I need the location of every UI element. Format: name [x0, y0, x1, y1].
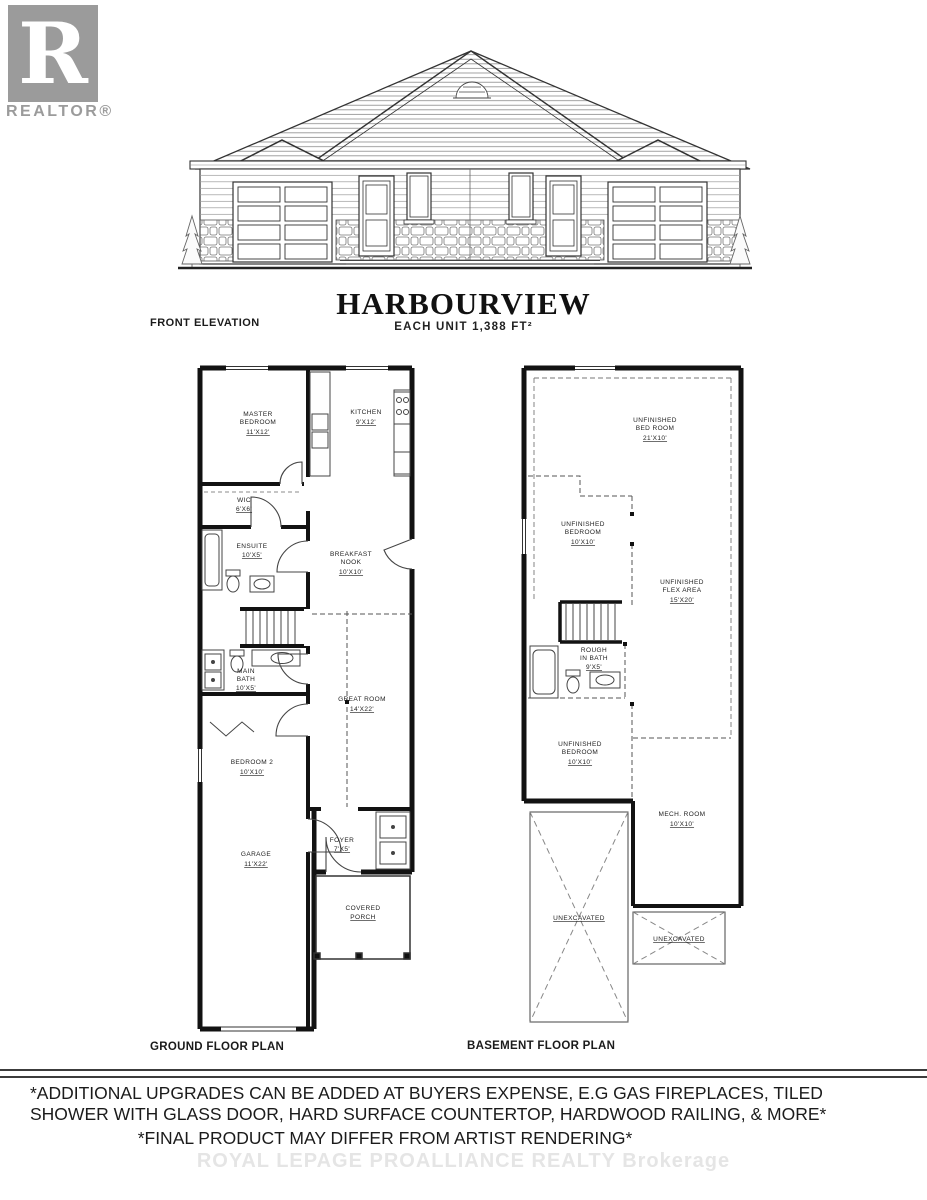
svg-text:10'X10': 10'X10' — [339, 569, 363, 576]
disclaimer-line-2: SHOWER WITH GLASS DOOR, HARD SURFACE COU… — [30, 1104, 910, 1125]
svg-text:10'X10': 10'X10' — [571, 539, 595, 546]
roof — [195, 51, 750, 169]
svg-text:ROUGH: ROUGH — [581, 647, 607, 654]
gf-room-label-porch: COVERED PORCH — [346, 905, 381, 921]
realtor-logo-letter: R — [8, 5, 98, 102]
shrub-left-icon — [182, 216, 202, 268]
gf-foyer-closet — [376, 812, 410, 869]
svg-text:BATH: BATH — [237, 676, 255, 683]
gf-room-label-breakfast: BREAKFAST NOOK 10'X10' — [330, 551, 372, 576]
bs-room-label-bed-mid: UNFINISHED BEDROOM 10'X10' — [561, 521, 605, 546]
svg-text:11'X22': 11'X22' — [244, 861, 268, 868]
svg-text:BEDROOM: BEDROOM — [562, 749, 598, 756]
eave-fascia — [190, 161, 746, 169]
svg-text:21'X10': 21'X10' — [643, 435, 667, 442]
realtor-logo-icon: R — [8, 5, 98, 102]
svg-text:9'X5': 9'X5' — [586, 664, 602, 671]
gf-room-label-main-bath: MAIN BATH 10'X5' — [236, 668, 256, 692]
gf-bedroom2-closet — [210, 722, 254, 736]
svg-text:10'X5': 10'X5' — [242, 552, 262, 559]
svg-text:BREAKFAST: BREAKFAST — [330, 551, 372, 558]
brokerage-watermark: ROYAL LEPAGE PROALLIANCE REALTY Brokerag… — [0, 1150, 927, 1173]
svg-text:KITCHEN: KITCHEN — [350, 409, 381, 416]
disclaimer-line-1: *ADDITIONAL UPGRADES CAN BE ADDED AT BUY… — [30, 1083, 910, 1104]
svg-text:WIC: WIC — [237, 497, 251, 504]
svg-text:GARAGE: GARAGE — [241, 851, 271, 858]
svg-text:MASTER: MASTER — [243, 411, 273, 418]
svg-text:BED ROOM: BED ROOM — [636, 425, 675, 432]
svg-text:10'X10': 10'X10' — [568, 759, 592, 766]
window-left — [404, 173, 434, 224]
svg-text:GREAT ROOM: GREAT ROOM — [338, 696, 386, 703]
svg-text:15'X20': 15'X20' — [670, 597, 694, 604]
svg-text:NOOK: NOOK — [341, 559, 362, 566]
gf-room-label-kitchen: KITCHEN 9'X12' — [350, 409, 381, 426]
svg-text:ENSUITE: ENSUITE — [237, 543, 268, 550]
svg-text:MAIN: MAIN — [237, 668, 255, 675]
gf-room-label-master: MASTER BEDROOM 11'X12' — [240, 411, 276, 436]
bs-room-label-flex: UNFINISHED FLEX AREA 15'X20' — [660, 579, 704, 604]
svg-text:BEDROOM 2: BEDROOM 2 — [231, 759, 274, 766]
realtor-logo-label: REALTOR® — [6, 103, 116, 121]
svg-text:UNFINISHED: UNFINISHED — [558, 741, 602, 748]
garage-door-left — [233, 182, 332, 262]
bs-stairs — [560, 602, 622, 642]
flyer-page: R REALTOR® — [0, 0, 927, 1200]
svg-text:6'X6': 6'X6' — [236, 506, 252, 513]
gf-room-label-foyer: FOYER 7'X5' — [330, 837, 354, 853]
bs-label-unexcavated-1: UNEXCAVATED — [553, 915, 605, 922]
svg-text:UNFINISHED: UNFINISHED — [561, 521, 605, 528]
svg-text:BEDROOM: BEDROOM — [240, 419, 276, 426]
gf-room-label-wic: WIC 6'X6' — [236, 497, 252, 513]
svg-text:10'X5': 10'X5' — [236, 685, 256, 692]
unit-size-subtitle: EACH UNIT 1,388 FT² — [0, 321, 927, 333]
gf-room-label-ensuite: ENSUITE 10'X5' — [237, 543, 268, 559]
svg-text:MECH. ROOM: MECH. ROOM — [659, 811, 706, 818]
entry-door-right — [546, 176, 581, 256]
svg-text:IN BATH: IN BATH — [580, 655, 608, 662]
divider-rule — [0, 1069, 927, 1078]
ground-floor-plan: MASTER BEDROOM 11'X12' KITCHEN 9'X12' WI… — [196, 364, 416, 1039]
gf-ensuite-fixtures — [202, 530, 274, 592]
svg-text:11'X12': 11'X12' — [246, 429, 270, 436]
garage-door-right — [608, 182, 707, 262]
bs-room-label-mech: MECH. ROOM 10'X10' — [659, 811, 706, 828]
svg-text:FLEX AREA: FLEX AREA — [662, 587, 701, 594]
ground-floor-caption: GROUND FLOOR PLAN — [150, 1041, 284, 1053]
bs-room-label-bed-top: UNFINISHED BED ROOM 21'X10' — [633, 417, 677, 442]
entry-door-left — [359, 176, 394, 256]
front-elevation-drawing — [170, 46, 760, 281]
svg-text:BEDROOM: BEDROOM — [565, 529, 601, 536]
bs-room-label-bed-low: UNFINISHED BEDROOM 10'X10' — [558, 741, 602, 766]
svg-text:COVERED: COVERED — [346, 905, 381, 912]
basement-floor-plan: UNFINISHED BED ROOM 21'X10' UNFINISHED B… — [520, 364, 745, 1039]
basement-floor-caption: BASEMENT FLOOR PLAN — [467, 1040, 615, 1052]
gf-stairs — [246, 611, 295, 644]
svg-text:9'X12': 9'X12' — [356, 419, 376, 426]
svg-text:7'X5': 7'X5' — [334, 846, 350, 853]
gf-room-label-great-room: GREAT ROOM 14'X22' — [338, 696, 386, 713]
bs-room-label-bath: ROUGH IN BATH 9'X5' — [580, 647, 608, 671]
svg-text:PORCH: PORCH — [350, 914, 375, 921]
svg-text:UNFINISHED: UNFINISHED — [660, 579, 704, 586]
window-right — [506, 173, 536, 224]
page-title: HARBOURVIEW — [0, 286, 927, 322]
bs-label-unexcavated-2: UNEXCAVATED — [653, 936, 705, 943]
svg-text:10'X10': 10'X10' — [240, 769, 264, 776]
svg-text:FOYER: FOYER — [330, 837, 354, 844]
svg-text:UNFINISHED: UNFINISHED — [633, 417, 677, 424]
gf-room-label-garage: GARAGE 11'X22' — [241, 851, 271, 868]
svg-text:10'X10': 10'X10' — [670, 821, 694, 828]
gf-room-label-bedroom2: BEDROOM 2 10'X10' — [231, 759, 274, 776]
svg-text:14'X22': 14'X22' — [350, 706, 374, 713]
final-note: *FINAL PRODUCT MAY DIFFER FROM ARTIST RE… — [0, 1128, 770, 1149]
